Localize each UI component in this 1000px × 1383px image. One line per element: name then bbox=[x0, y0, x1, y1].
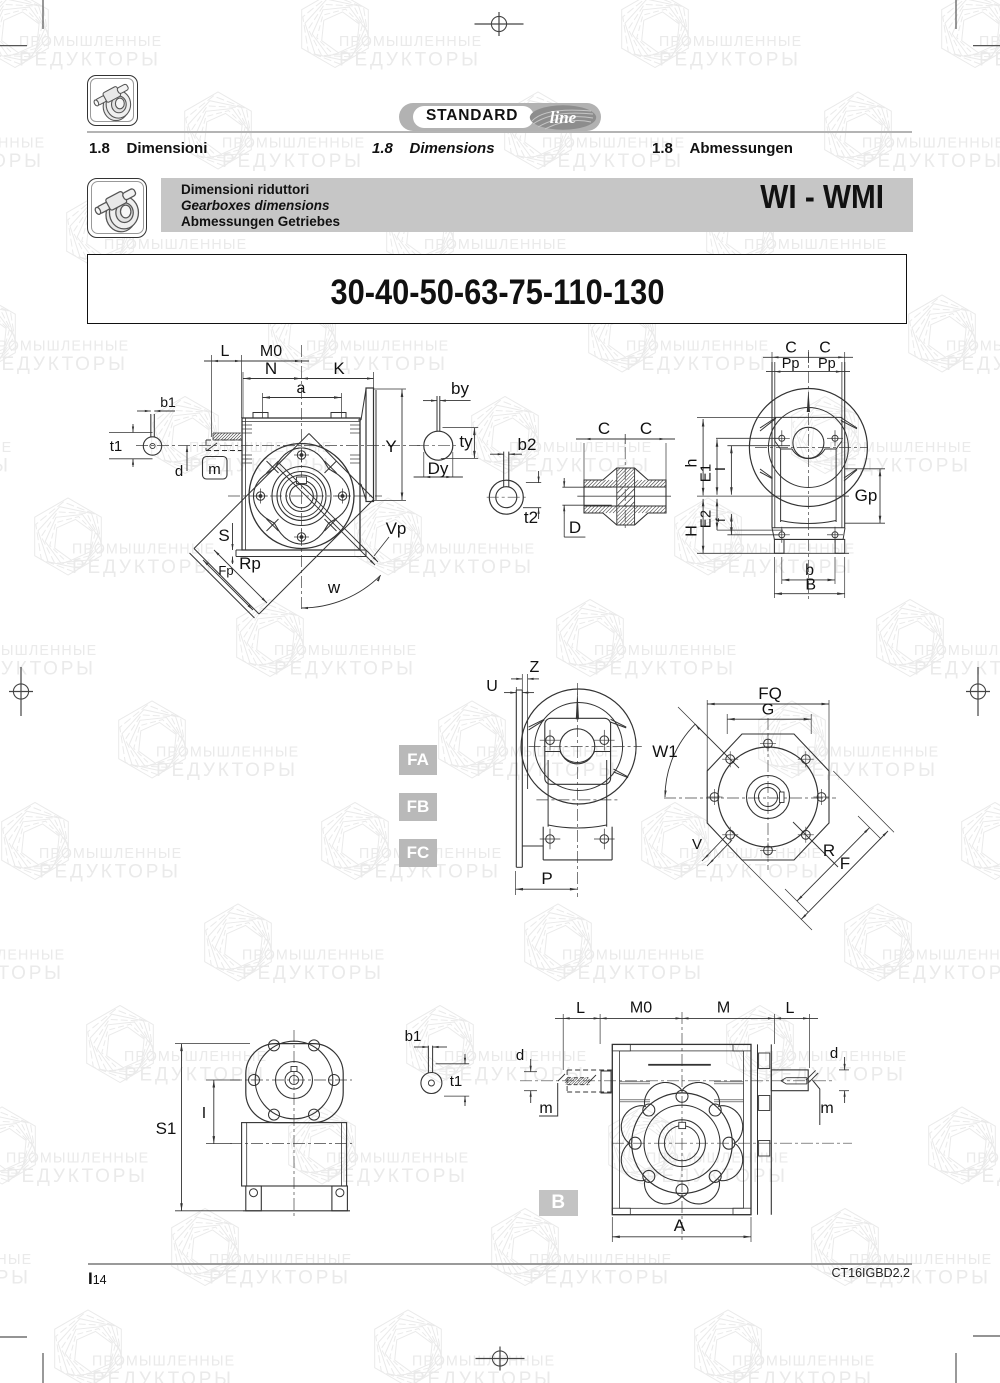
svg-text:R: R bbox=[823, 841, 835, 860]
svg-text:Fp: Fp bbox=[218, 563, 233, 578]
svg-text:V: V bbox=[692, 836, 702, 853]
svg-text:D: D bbox=[569, 518, 581, 537]
svg-text:by: by bbox=[451, 379, 469, 398]
svg-text:G: G bbox=[762, 702, 774, 719]
svg-text:ty: ty bbox=[459, 432, 473, 451]
svg-text:m: m bbox=[208, 461, 221, 478]
svg-text:I: I bbox=[712, 467, 729, 471]
svg-text:t1: t1 bbox=[450, 1073, 463, 1090]
svg-text:L: L bbox=[576, 1000, 585, 1017]
svg-text:f: f bbox=[713, 518, 728, 522]
svg-text:C: C bbox=[640, 419, 652, 438]
svg-text:A: A bbox=[674, 1216, 686, 1235]
svg-text:Pp: Pp bbox=[818, 356, 836, 372]
svg-text:K: K bbox=[333, 359, 345, 378]
svg-text:B: B bbox=[805, 577, 816, 594]
svg-text:Pp: Pp bbox=[782, 356, 800, 372]
svg-text:C: C bbox=[785, 340, 797, 357]
svg-text:L: L bbox=[786, 1000, 795, 1017]
svg-text:Vp: Vp bbox=[386, 519, 407, 538]
svg-text:P: P bbox=[541, 869, 552, 888]
svg-text:C: C bbox=[598, 419, 610, 438]
svg-text:Rp: Rp bbox=[239, 554, 261, 573]
svg-text:m: m bbox=[539, 1100, 552, 1117]
svg-text:d: d bbox=[175, 463, 183, 480]
svg-text:d: d bbox=[516, 1047, 524, 1064]
svg-text:C: C bbox=[819, 340, 831, 357]
svg-text:L: L bbox=[221, 343, 230, 360]
svg-text:E1: E1 bbox=[698, 464, 715, 482]
svg-text:Gp: Gp bbox=[855, 486, 878, 505]
svg-text:S: S bbox=[218, 526, 229, 545]
svg-text:t2: t2 bbox=[524, 508, 538, 527]
svg-text:a: a bbox=[297, 380, 306, 397]
svg-text:FQ: FQ bbox=[758, 684, 782, 703]
svg-text:b1: b1 bbox=[160, 394, 176, 410]
svg-text:W1: W1 bbox=[652, 742, 678, 761]
svg-text:H: H bbox=[684, 525, 701, 537]
svg-text:t1: t1 bbox=[110, 438, 123, 455]
svg-text:b2: b2 bbox=[518, 435, 537, 454]
svg-text:m: m bbox=[820, 1100, 833, 1117]
svg-text:M0: M0 bbox=[260, 343, 282, 360]
svg-text:I: I bbox=[202, 1105, 206, 1122]
svg-text:N: N bbox=[265, 359, 277, 378]
svg-text:M: M bbox=[717, 1000, 730, 1017]
svg-text:Z: Z bbox=[530, 659, 540, 676]
svg-text:S1: S1 bbox=[156, 1119, 177, 1138]
svg-text:M0: M0 bbox=[630, 1000, 652, 1017]
svg-text:F: F bbox=[840, 854, 850, 873]
svg-text:d: d bbox=[830, 1045, 838, 1062]
svg-text:b1: b1 bbox=[405, 1028, 422, 1045]
svg-text:U: U bbox=[486, 678, 498, 695]
svg-text:Dy: Dy bbox=[428, 459, 449, 478]
svg-text:Y: Y bbox=[385, 437, 396, 456]
svg-text:w: w bbox=[327, 578, 341, 597]
